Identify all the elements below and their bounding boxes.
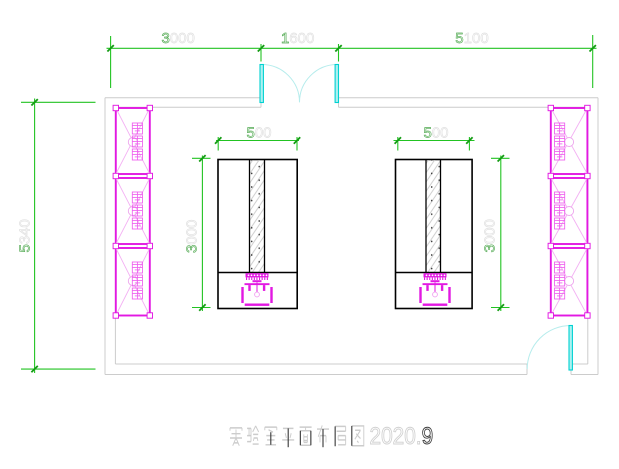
svg-text:3000: 3000 (162, 30, 195, 47)
svg-text:3000: 3000 (184, 220, 201, 253)
svg-text:1600: 1600 (281, 30, 314, 47)
svg-text:2020.9: 2020.9 (370, 421, 434, 449)
svg-text:500: 500 (424, 125, 449, 142)
svg-text:3000: 3000 (482, 219, 499, 252)
svg-text:500: 500 (247, 125, 272, 142)
svg-text:5340: 5340 (17, 219, 34, 252)
svg-text:5100: 5100 (455, 30, 488, 47)
